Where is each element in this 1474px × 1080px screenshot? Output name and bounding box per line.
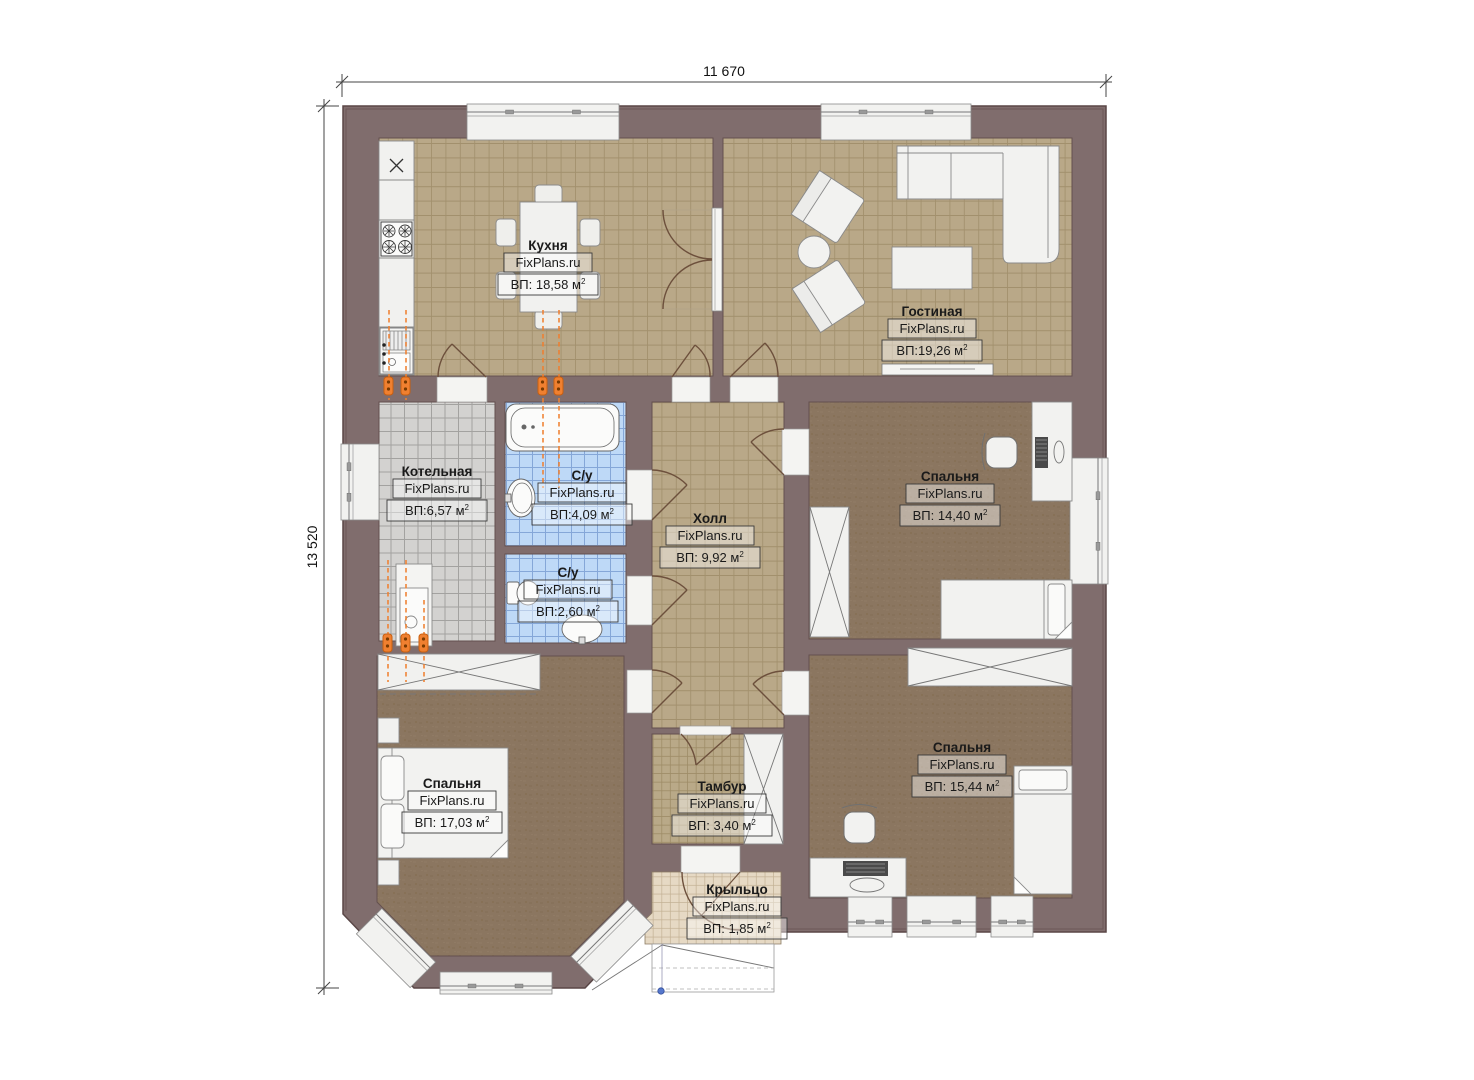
svg-text:Кухня: Кухня — [528, 238, 567, 253]
svg-text:Тамбур: Тамбур — [698, 779, 747, 794]
svg-text:FixPlans.ru: FixPlans.ru — [917, 486, 982, 501]
svg-text:FixPlans.ru: FixPlans.ru — [535, 582, 600, 597]
svg-text:С/у: С/у — [571, 468, 593, 483]
svg-text:FixPlans.ru: FixPlans.ru — [515, 255, 580, 270]
svg-text:ВП:6,57 м2: ВП:6,57 м2 — [405, 503, 469, 518]
svg-text:Спальня: Спальня — [423, 776, 481, 791]
svg-text:Гостиная: Гостиная — [901, 304, 962, 319]
svg-text:ВП: 9,92 м2: ВП: 9,92 м2 — [676, 550, 744, 565]
svg-text:ВП:4,09 м2: ВП:4,09 м2 — [550, 507, 614, 522]
svg-text:Холл: Холл — [693, 511, 727, 526]
svg-text:FixPlans.ru: FixPlans.ru — [929, 757, 994, 772]
svg-text:FixPlans.ru: FixPlans.ru — [677, 528, 742, 543]
svg-text:FixPlans.ru: FixPlans.ru — [899, 321, 964, 336]
svg-text:FixPlans.ru: FixPlans.ru — [689, 796, 754, 811]
svg-text:ВП: 14,40 м2: ВП: 14,40 м2 — [913, 508, 988, 523]
svg-text:FixPlans.ru: FixPlans.ru — [549, 485, 614, 500]
svg-text:ВП:19,26 м2: ВП:19,26 м2 — [896, 343, 968, 358]
svg-text:Спальня: Спальня — [921, 469, 979, 484]
svg-text:ВП: 17,03 м2: ВП: 17,03 м2 — [415, 815, 490, 830]
svg-text:С/у: С/у — [557, 565, 579, 580]
svg-text:Котельная: Котельная — [402, 464, 473, 479]
svg-text:ВП: 1,85 м2: ВП: 1,85 м2 — [703, 921, 771, 936]
svg-text:ВП: 18,58 м2: ВП: 18,58 м2 — [511, 277, 586, 292]
svg-text:FixPlans.ru: FixPlans.ru — [404, 481, 469, 496]
svg-text:13 520: 13 520 — [304, 525, 320, 568]
svg-text:FixPlans.ru: FixPlans.ru — [704, 899, 769, 914]
svg-text:11 670: 11 670 — [703, 63, 745, 79]
svg-text:ВП:2,60 м2: ВП:2,60 м2 — [536, 604, 600, 619]
svg-text:ВП: 15,44 м2: ВП: 15,44 м2 — [925, 779, 1000, 794]
svg-text:FixPlans.ru: FixPlans.ru — [419, 793, 484, 808]
svg-text:Спальня: Спальня — [933, 740, 991, 755]
svg-text:ВП: 3,40 м2: ВП: 3,40 м2 — [688, 818, 756, 833]
svg-text:Крыльцо: Крыльцо — [706, 882, 767, 897]
